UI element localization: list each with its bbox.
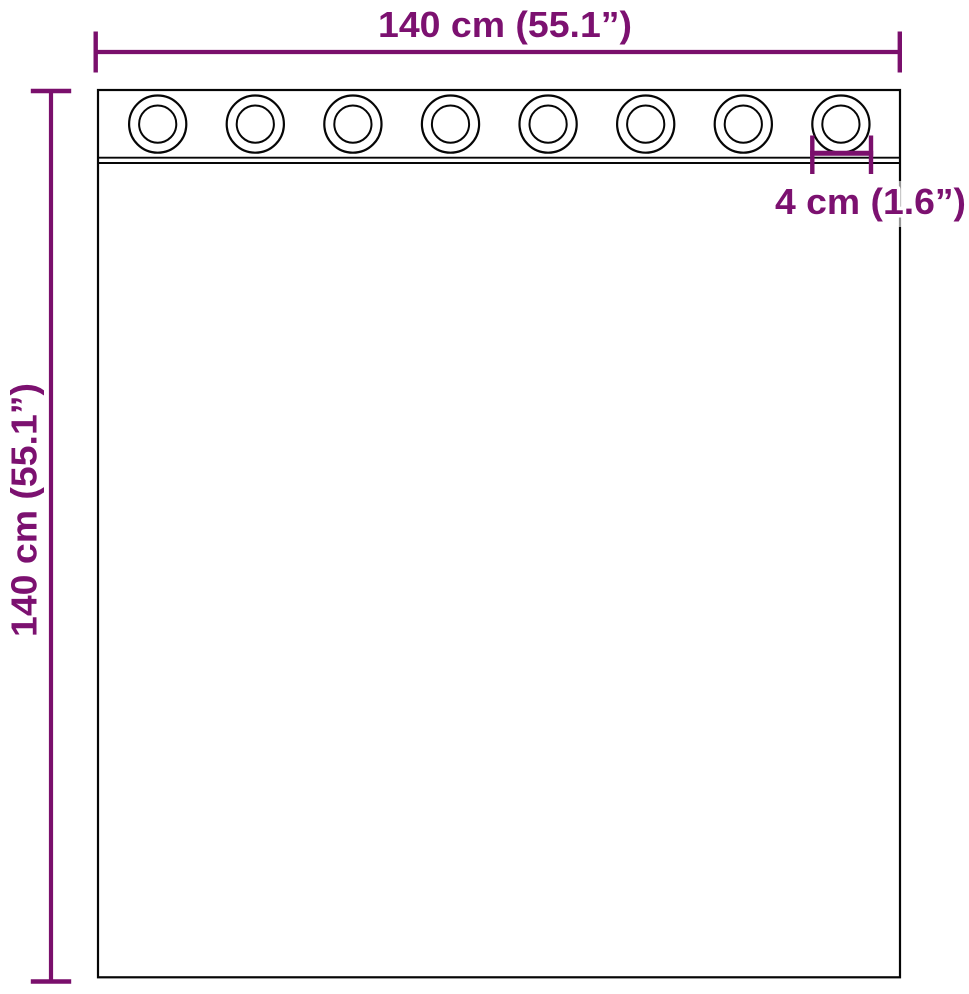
svg-text:140 cm (55.1”): 140 cm (55.1”) xyxy=(378,4,632,45)
svg-text:4 cm (1.6”): 4 cm (1.6”) xyxy=(775,181,966,222)
svg-text:140 cm (55.1”): 140 cm (55.1”) xyxy=(4,383,45,637)
